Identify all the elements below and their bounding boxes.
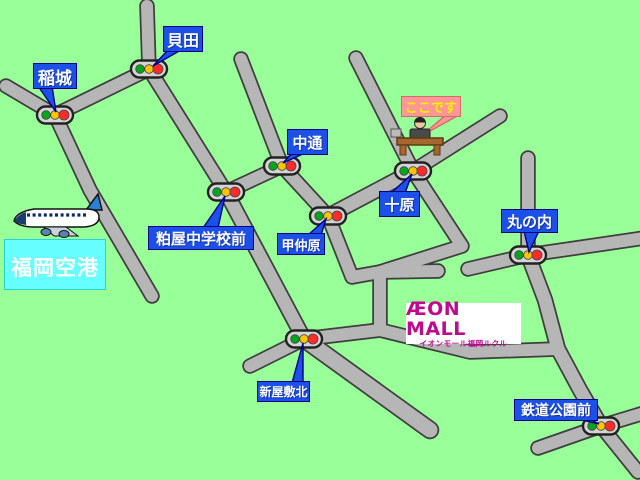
- road-segment-fill-5: [226, 192, 304, 339]
- map-label-nakadori: 中通: [287, 129, 328, 155]
- road-segment-fill-22: [304, 339, 430, 430]
- aeon-mall-logo-title: ÆON MALL: [406, 299, 521, 339]
- map-label-marunouchi: 丸の内: [501, 209, 558, 233]
- map-label-inagi: 稲城: [33, 63, 77, 89]
- label-pointer-kaida: [153, 50, 181, 66]
- route-map: 稲城貝田中通十原丸の内粕屋中学校前甲仲原新屋敷北鉄道公園前 ここです 福岡空港 …: [0, 0, 640, 480]
- map-label-kaida: 貝田: [163, 26, 203, 52]
- aeon-mall-logo-subtitle: イオンモール福岡ルクル: [420, 339, 508, 348]
- here-callout: ここです: [401, 96, 461, 117]
- aeon-mall-logo: ÆON MALL イオンモール福岡ルクル: [406, 303, 521, 344]
- map-label-konakabaru: 甲仲原: [277, 233, 325, 255]
- road-segment-fill-4: [149, 69, 226, 192]
- map-label-shinyashiki-kita: 新屋敷北: [257, 381, 310, 402]
- here-callout-text: ここです: [405, 97, 457, 116]
- traffic-signal-7: [286, 331, 322, 348]
- traffic-signal-2: [208, 184, 244, 201]
- traffic-signal-4: [310, 208, 346, 225]
- road-segment-fill-7: [241, 59, 282, 166]
- fukuoka-airport-label: 福岡空港: [4, 239, 106, 290]
- traffic-signal-5: [395, 163, 431, 180]
- airport-label-text: 福岡空港: [11, 252, 99, 282]
- traffic-signal-3: [264, 158, 300, 175]
- map-label-tetsudo-koen-mae: 鉄道公園前: [514, 399, 598, 421]
- map-label-juhara: 十原: [379, 191, 420, 217]
- traffic-signal-1: [131, 61, 167, 78]
- map-label-kasuya-chugakko-mae: 粕屋中学校前: [148, 226, 254, 250]
